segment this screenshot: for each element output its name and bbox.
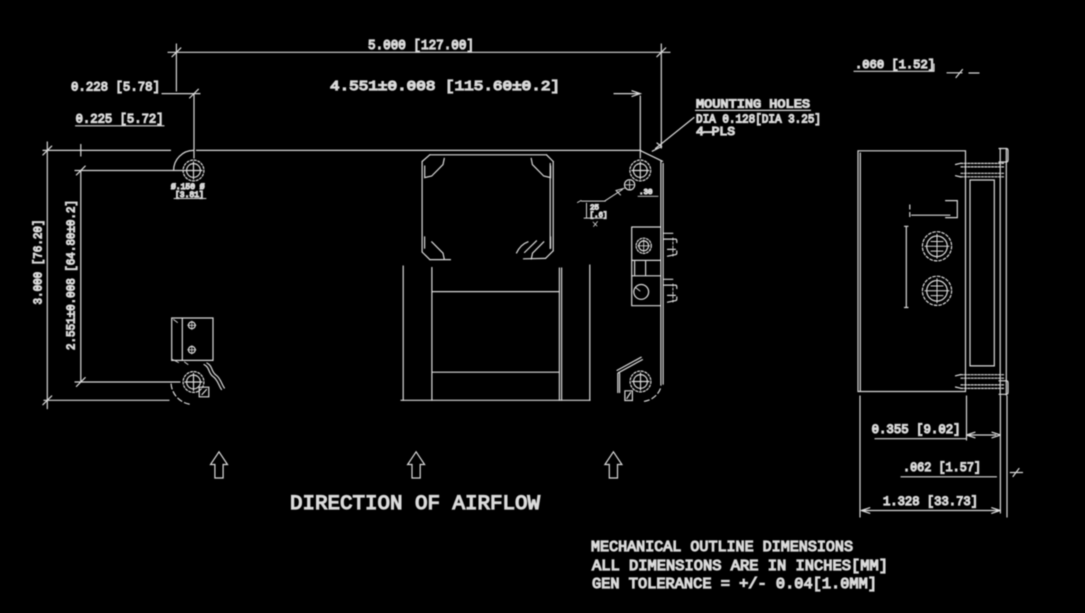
svg-text:ALL DIMENSIONS ARE IN INCHES[M: ALL DIMENSIONS ARE IN INCHES[MM] bbox=[592, 558, 888, 575]
svg-text:5.000 [127.00]: 5.000 [127.00] bbox=[368, 39, 474, 54]
svg-text:MOUNTING HOLES: MOUNTING HOLES bbox=[696, 98, 810, 112]
svg-text:MECHANICAL OUTLINE DIMENSIONS: MECHANICAL OUTLINE DIMENSIONS bbox=[591, 539, 853, 556]
svg-text:DIRECTION OF AIRFLOW: DIRECTION OF AIRFLOW bbox=[290, 493, 540, 516]
svg-text:0.228 [5.78]: 0.228 [5.78] bbox=[71, 80, 160, 95]
svg-text:.060 [1.52]: .060 [1.52] bbox=[855, 58, 935, 72]
svg-text:3.000 [76.20]: 3.000 [76.20] bbox=[32, 220, 46, 305]
svg-text:4.551±0.008 [115.60±0.2]: 4.551±0.008 [115.60±0.2] bbox=[330, 80, 560, 95]
svg-text:.062 [1.57]: .062 [1.57] bbox=[903, 461, 981, 475]
svg-text:GEN TOLERANCE = +/- 0.04[1.0MM: GEN TOLERANCE = +/- 0.04[1.0MM] bbox=[592, 576, 877, 593]
svg-text:0.225 [5.72]: 0.225 [5.72] bbox=[76, 112, 164, 127]
svg-text:.30: .30 bbox=[639, 189, 653, 197]
svg-text:0.355 [9.02]: 0.355 [9.02] bbox=[872, 423, 961, 437]
svg-text:1.328 [33.73]: 1.328 [33.73] bbox=[883, 495, 978, 509]
svg-text:[.6]: [.6] bbox=[590, 212, 608, 220]
svg-text:4—PLS: 4—PLS bbox=[696, 125, 735, 139]
svg-text:2.551±0.008 [64.80±0.2]: 2.551±0.008 [64.80±0.2] bbox=[65, 200, 79, 350]
